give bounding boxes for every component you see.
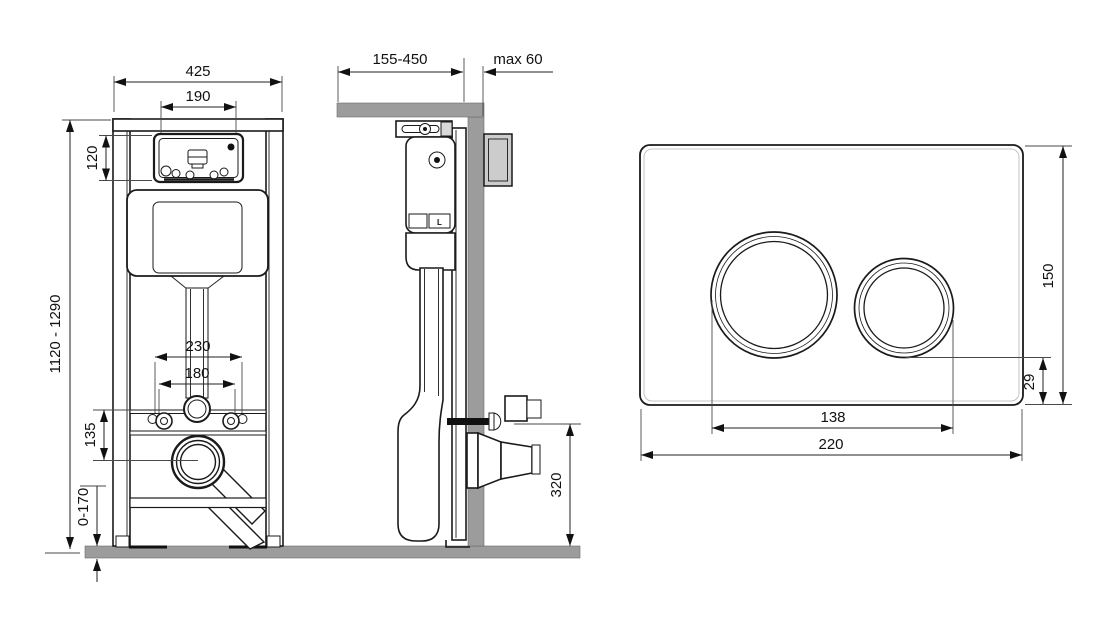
- tank-lower-side: [406, 233, 455, 270]
- flush-pipe-connector: [184, 396, 210, 422]
- dim-bracket-depth: 155-450: [338, 51, 464, 102]
- valve-mark-label: L: [437, 218, 442, 227]
- bottom-crossbar: [130, 498, 266, 508]
- dim-plate-height-label: 150: [1040, 263, 1057, 288]
- bracket-arm: [396, 121, 452, 137]
- dim-plate-width-label: 220: [818, 436, 843, 453]
- dim-window-width-label: 190: [185, 88, 210, 105]
- wall-sleeve: [505, 396, 527, 421]
- dim-total-height-label: 1120 - 1290: [47, 295, 64, 374]
- dim-window-height-label: 120: [84, 145, 101, 170]
- dim-floor-adjust-label: 0-170: [75, 488, 92, 526]
- dim-outer-bolt-span-label: 230: [185, 338, 210, 355]
- installation-drawing: L 155-450: [0, 0, 1120, 626]
- cistern-side: L: [406, 137, 455, 270]
- rail-row-lower: [130, 431, 266, 435]
- dome-nut: [494, 413, 501, 430]
- dim-outlet-height-label: 320: [548, 472, 565, 497]
- dim-button-span-label: 138: [820, 409, 845, 426]
- flush-button-large: [711, 232, 837, 358]
- dim-bracket-depth-label: 155-450: [372, 51, 427, 68]
- dim-wall-finish-max: max 60: [483, 51, 553, 116]
- flush-elbow-side: [398, 268, 443, 541]
- dim-outlet-height: 320: [514, 424, 581, 546]
- front-view: 425 190 120 1120 - 1290 230: [45, 63, 283, 582]
- cistern-front: [127, 190, 268, 289]
- flush-button-small: [855, 259, 954, 358]
- waste-outlet-front: [172, 436, 224, 488]
- outlet-cone: [467, 433, 540, 488]
- flush-plate-view: 150 29 138 220: [640, 145, 1072, 461]
- dim-wall-finish-label: max 60: [493, 51, 542, 68]
- installation-drawing-page: L 155-450: [0, 0, 1120, 626]
- dim-button-offset-label: 29: [1021, 374, 1038, 391]
- dim-inner-bolt-span-label: 180: [184, 365, 209, 382]
- inspection-window: [154, 134, 243, 182]
- top-support-bar: [337, 103, 484, 117]
- dim-bolt-to-outlet-label: 135: [82, 422, 99, 447]
- dim-plate-height: 150: [1025, 146, 1072, 405]
- dim-floor-adjust: 0-170: [75, 486, 106, 582]
- frame-foot-right: [267, 536, 280, 547]
- frame-foot-left: [116, 536, 129, 547]
- wall-anchor-plate: [484, 134, 512, 186]
- side-view: L 155-450: [337, 51, 581, 547]
- dim-total-width-label: 425: [185, 63, 210, 80]
